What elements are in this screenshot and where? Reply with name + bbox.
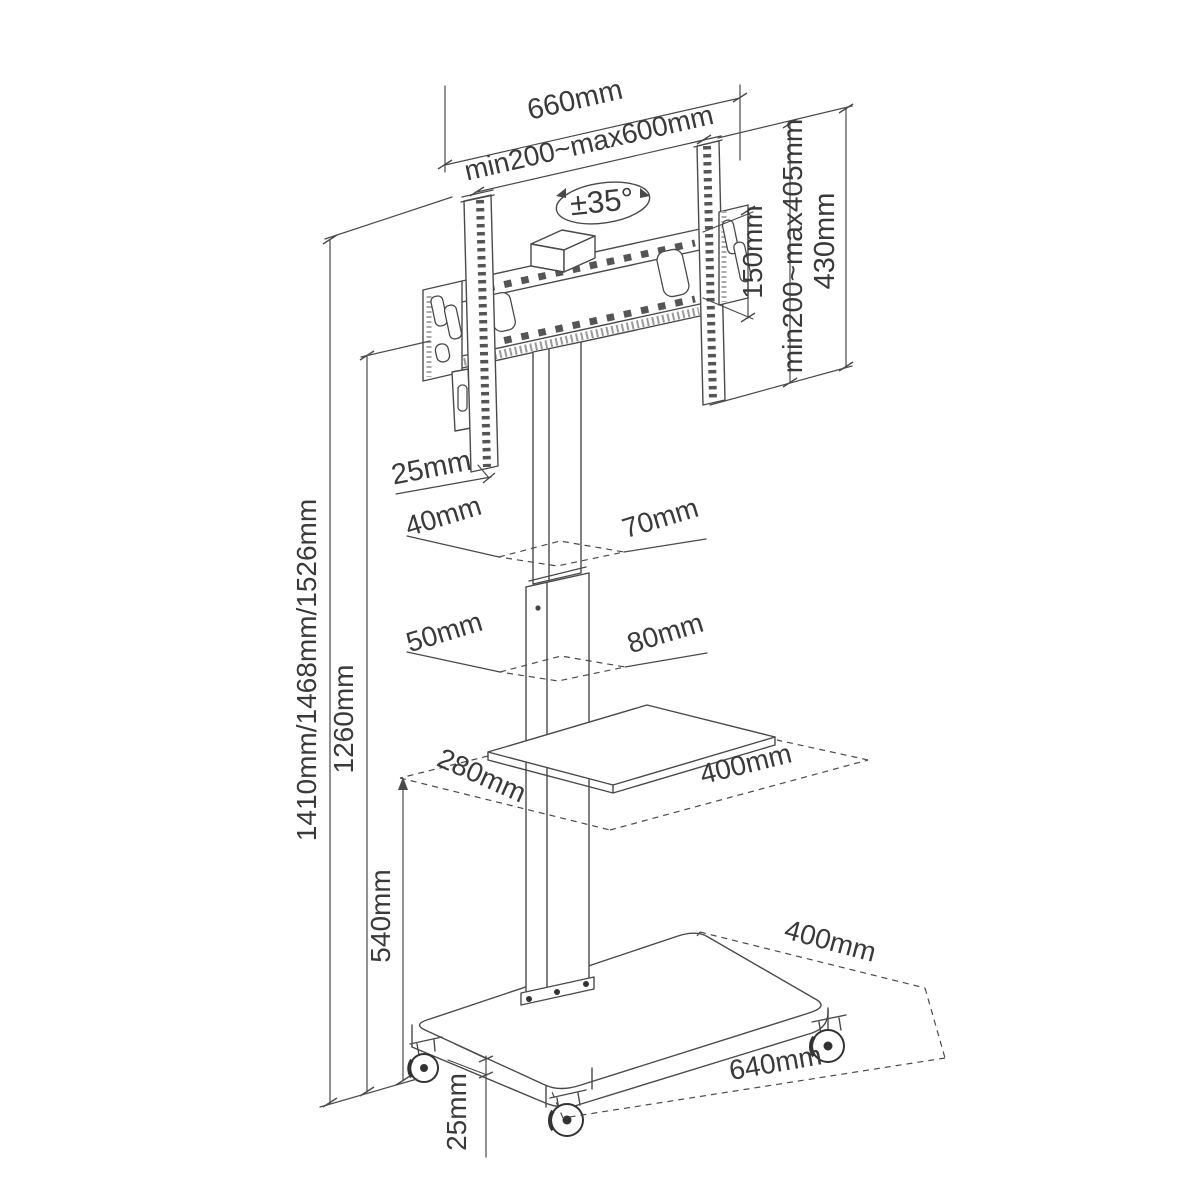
overall-height-label: 1410mm/1468mm/1526mm <box>291 499 322 841</box>
bracket-width-label: 660mm <box>524 74 625 127</box>
pole-screw-hole <box>535 605 540 610</box>
shelf-height-label: 540mm <box>365 869 396 962</box>
support-pole <box>521 342 594 1005</box>
caster-left <box>409 1037 442 1082</box>
column-height-label: 1260mm <box>328 665 359 774</box>
pole-lower-depth-label: 50mm <box>402 606 485 658</box>
pole-top-clamp <box>531 230 595 272</box>
swivel-angle-label: ±35° <box>568 181 635 222</box>
tv-floor-stand-dimension-diagram: 660mm min200~max600mm ±35° 150mm min200~… <box>0 0 1200 1200</box>
base-depth-label: 400mm <box>781 914 879 968</box>
diagram-svg: 660mm min200~max600mm ±35° 150mm min200~… <box>0 0 1200 1200</box>
vesa-height-range-label: min200~max405mm <box>777 119 808 373</box>
rail-thickness-label: 25mm <box>389 445 474 492</box>
pole-upper-depth-label: 40mm <box>401 490 484 542</box>
floor-extension-line <box>320 1079 417 1107</box>
plate-height-label: 150mm <box>737 205 768 298</box>
pole-upper-section <box>533 342 581 584</box>
dim-shelf-height <box>396 777 410 1085</box>
base-platform <box>412 933 828 1107</box>
bracket-left-rail <box>461 190 498 472</box>
pole-upper-width-label: 70mm <box>618 492 701 544</box>
rail-height-label: 430mm <box>809 193 841 290</box>
pole-lower-width-label: 80mm <box>623 607 706 659</box>
caster-front <box>550 1090 586 1136</box>
base-thickness-label: 25mm <box>441 1073 472 1151</box>
